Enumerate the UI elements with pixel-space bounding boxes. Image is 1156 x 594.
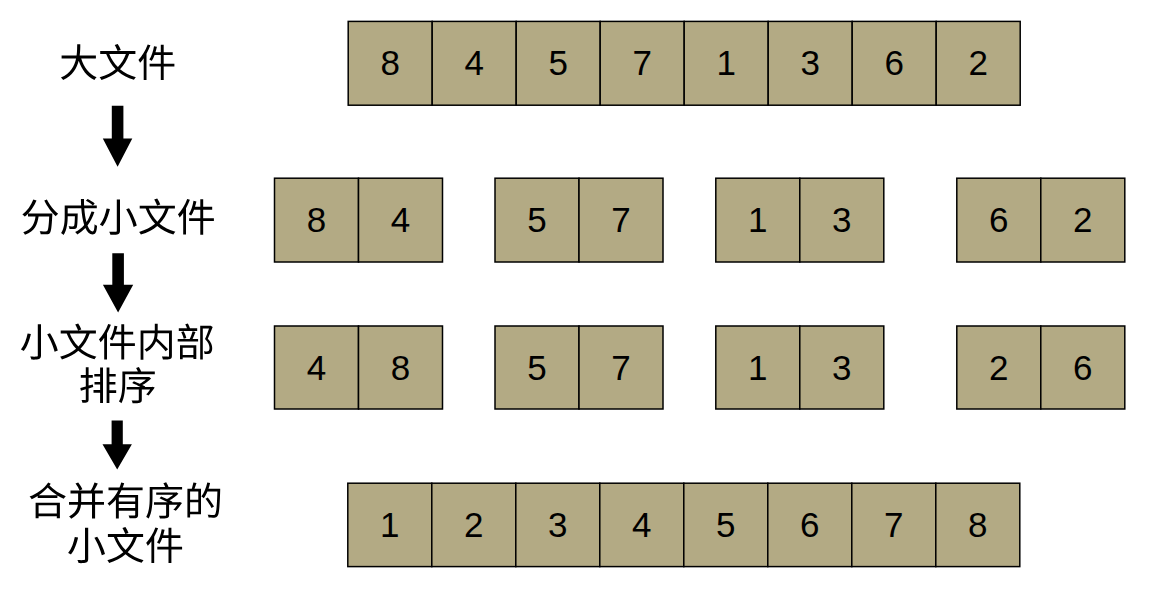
svg-text:1: 1 <box>748 200 767 239</box>
svg-text:4: 4 <box>391 200 410 239</box>
svg-text:2: 2 <box>968 43 987 82</box>
svg-text:1: 1 <box>380 505 399 544</box>
svg-text:2: 2 <box>989 348 1008 387</box>
svg-text:5: 5 <box>548 43 567 82</box>
svg-text:2: 2 <box>1073 200 1092 239</box>
svg-text:1: 1 <box>748 348 767 387</box>
svg-text:4: 4 <box>307 348 326 387</box>
svg-text:5: 5 <box>527 200 546 239</box>
svg-text:2: 2 <box>464 505 483 544</box>
svg-text:8: 8 <box>307 200 326 239</box>
svg-text:5: 5 <box>716 505 735 544</box>
svg-text:3: 3 <box>548 505 567 544</box>
svg-text:6: 6 <box>800 505 819 544</box>
svg-text:6: 6 <box>989 200 1008 239</box>
svg-text:8: 8 <box>968 505 987 544</box>
svg-text:8: 8 <box>380 43 399 82</box>
svg-text:3: 3 <box>800 43 819 82</box>
svg-text:6: 6 <box>1073 348 1092 387</box>
svg-text:7: 7 <box>611 200 630 239</box>
svg-text:7: 7 <box>611 348 630 387</box>
svg-text:4: 4 <box>632 505 651 544</box>
svg-text:8: 8 <box>391 348 410 387</box>
svg-text:1: 1 <box>716 43 735 82</box>
svg-text:5: 5 <box>527 348 546 387</box>
svg-text:7: 7 <box>884 505 903 544</box>
svg-text:4: 4 <box>464 43 483 82</box>
svg-text:6: 6 <box>884 43 903 82</box>
svg-text:3: 3 <box>832 200 851 239</box>
svg-text:3: 3 <box>832 348 851 387</box>
svg-text:7: 7 <box>632 43 651 82</box>
